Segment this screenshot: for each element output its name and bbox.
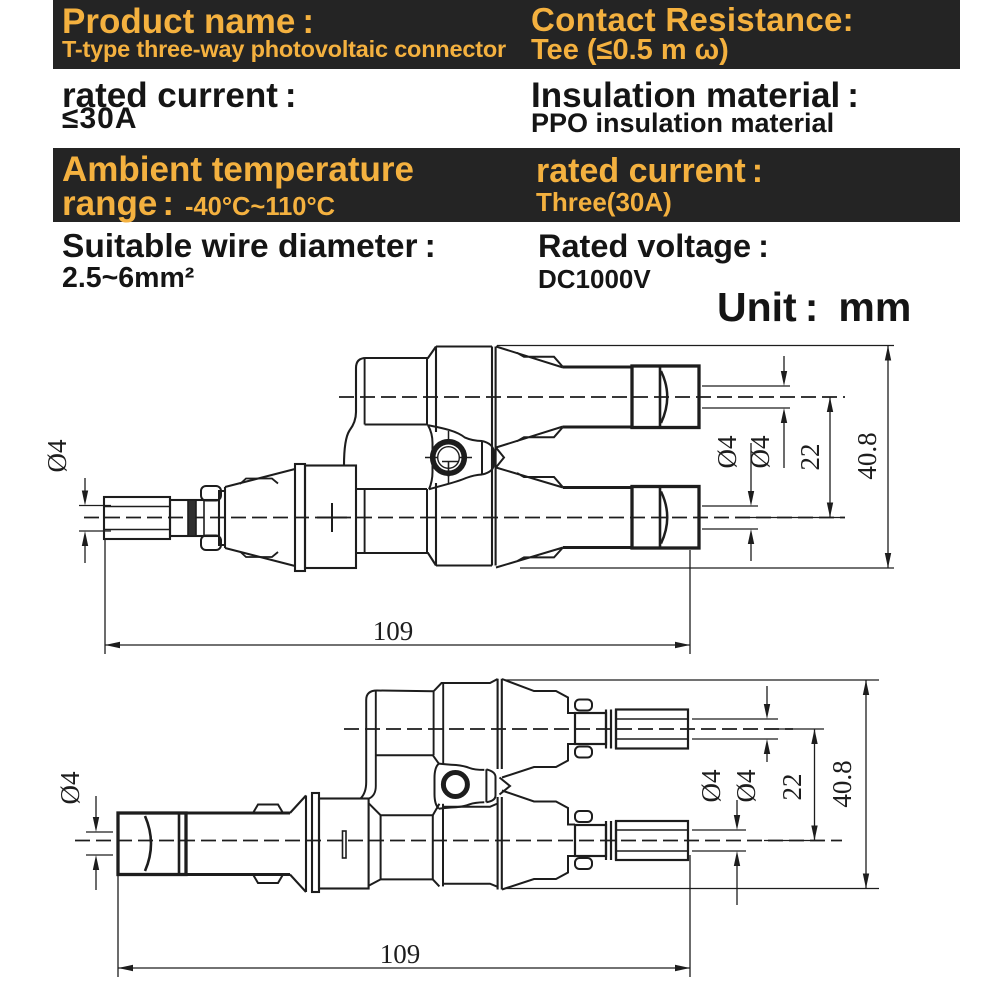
svg-text:22: 22 [795,444,825,471]
svg-text:Ø4: Ø4 [55,771,85,804]
svg-text:22: 22 [777,774,807,801]
svg-text:Ø4: Ø4 [745,435,775,468]
svg-text:109: 109 [380,939,421,969]
svg-text:Ø4: Ø4 [42,439,72,472]
svg-text:40.8: 40.8 [827,760,857,807]
svg-text:40.8: 40.8 [852,432,882,479]
svg-text:Ø4: Ø4 [696,769,726,802]
svg-text:109: 109 [373,616,414,646]
svg-text:Ø4: Ø4 [731,769,761,802]
svg-text:Ø4: Ø4 [712,435,742,468]
